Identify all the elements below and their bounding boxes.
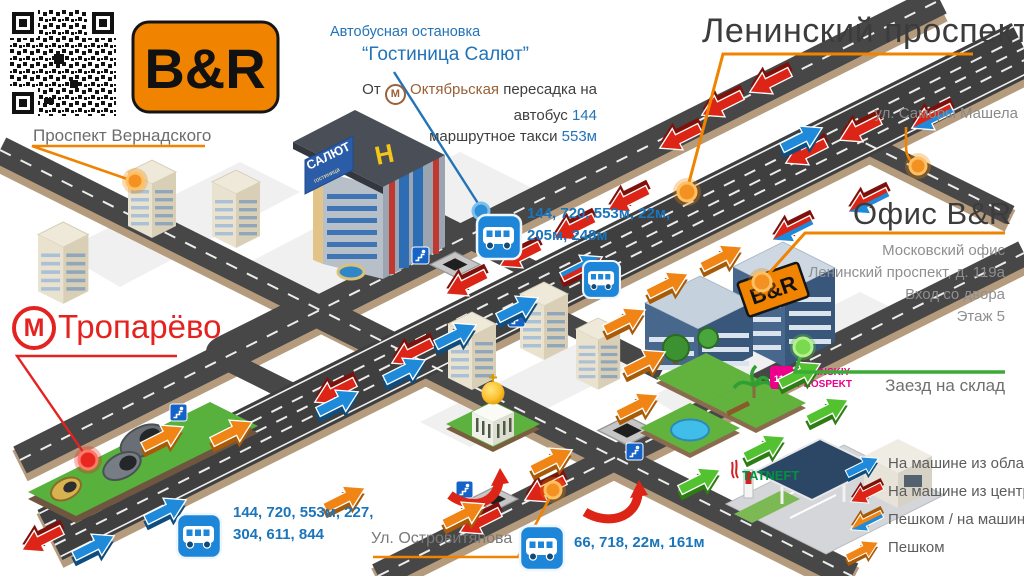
street-label-samory: ул. Саморы Машела xyxy=(874,105,1018,122)
transfer-taxi-word: маршрутное такси xyxy=(429,128,557,145)
transfer-bus-word: автобус xyxy=(514,107,568,124)
bus-routes-salut: 144, 720, 553м, 22м, 205м, 248м xyxy=(527,203,670,247)
legend-item-walk: Пешком xyxy=(888,539,945,556)
street-label-vernadskogo: Проспект Вернадского xyxy=(33,126,211,146)
transfer-rest: пересадка на xyxy=(503,81,597,98)
street-label-ostrovityanova: Ул. Островитянова xyxy=(371,530,512,548)
transfer-bus-num: 144 xyxy=(572,107,597,124)
map-canvas: H САЛЮТ гостиница B&R xyxy=(0,0,1024,576)
office-title: Офис B&R xyxy=(853,196,1012,232)
br-logo: B&R xyxy=(133,22,278,112)
bus-icon-office xyxy=(583,261,620,298)
bus-routes-salut-line1: 144, 720, 553м, 22м, xyxy=(527,203,670,225)
dot-troparevo xyxy=(74,446,102,474)
bus-routes-sw-line2: 304, 611, 844 xyxy=(233,524,373,546)
red-uturn-arrow xyxy=(585,494,638,519)
metro-label-troparevo: Тропарёво xyxy=(58,308,221,346)
bus-stop-caption: Автобусная остановка xyxy=(330,24,480,40)
dot-samory xyxy=(905,153,931,179)
dot-leninsky xyxy=(673,178,701,206)
metro-icon-oktyabrskaya: М xyxy=(385,84,406,105)
metro-icon-troparevo: М xyxy=(12,306,56,350)
green-arrow xyxy=(800,389,856,436)
br-logo-text: B&R xyxy=(144,37,265,100)
bus-routes-southwest: 144, 720, 553м, 227, 304, 611, 844 xyxy=(233,502,373,546)
red-uturn-head xyxy=(491,468,509,486)
bus-icon-south xyxy=(520,526,564,570)
transfer-from: От xyxy=(362,81,381,98)
office-line-3: Вход со двора xyxy=(808,284,1005,306)
bus-icon-southwest xyxy=(177,514,221,558)
bus-routes-salut-line2: 205м, 248м xyxy=(527,225,670,247)
street-label-leninsky: Ленинский проспект xyxy=(702,12,1024,51)
legend-item-walk-or-car: Пешком / на машине xyxy=(888,511,1024,528)
bus-routes-sw-line1: 144, 720, 553м, 227, xyxy=(233,502,373,524)
bus-routes-south: 66, 718, 22м, 161м xyxy=(574,532,705,554)
dot-office xyxy=(748,268,776,296)
legend-item-from-oblast: На машине из области xyxy=(888,455,1024,472)
dot-ostrovityanova xyxy=(540,477,566,503)
dot-warehouse xyxy=(790,334,816,360)
office-address: Московский офис Ленинский проспект, д. 1… xyxy=(808,240,1005,328)
warehouse-label: Заезд на склад xyxy=(885,376,1005,396)
office-line-4: Этаж 5 xyxy=(808,306,1005,328)
bus-icon-salut xyxy=(477,215,521,259)
office-line-2: Ленинский проспект, д. 119а xyxy=(808,262,1005,284)
office-line-1: Московский офис xyxy=(808,240,1005,262)
transfer-note: От М Октябрьская пересадка на автобус 14… xyxy=(362,79,597,147)
transfer-station: Октябрьская xyxy=(410,81,499,98)
tatneft-logo-text: TATNEFT xyxy=(742,468,799,483)
transfer-taxi-num: 553м xyxy=(562,128,597,145)
legend-item-from-center: На машине из центра xyxy=(888,483,1024,500)
qr-code xyxy=(10,10,116,116)
dot-vernadskogo xyxy=(122,168,148,194)
bus-stop-name: “Гостиница Салют” xyxy=(362,44,529,66)
